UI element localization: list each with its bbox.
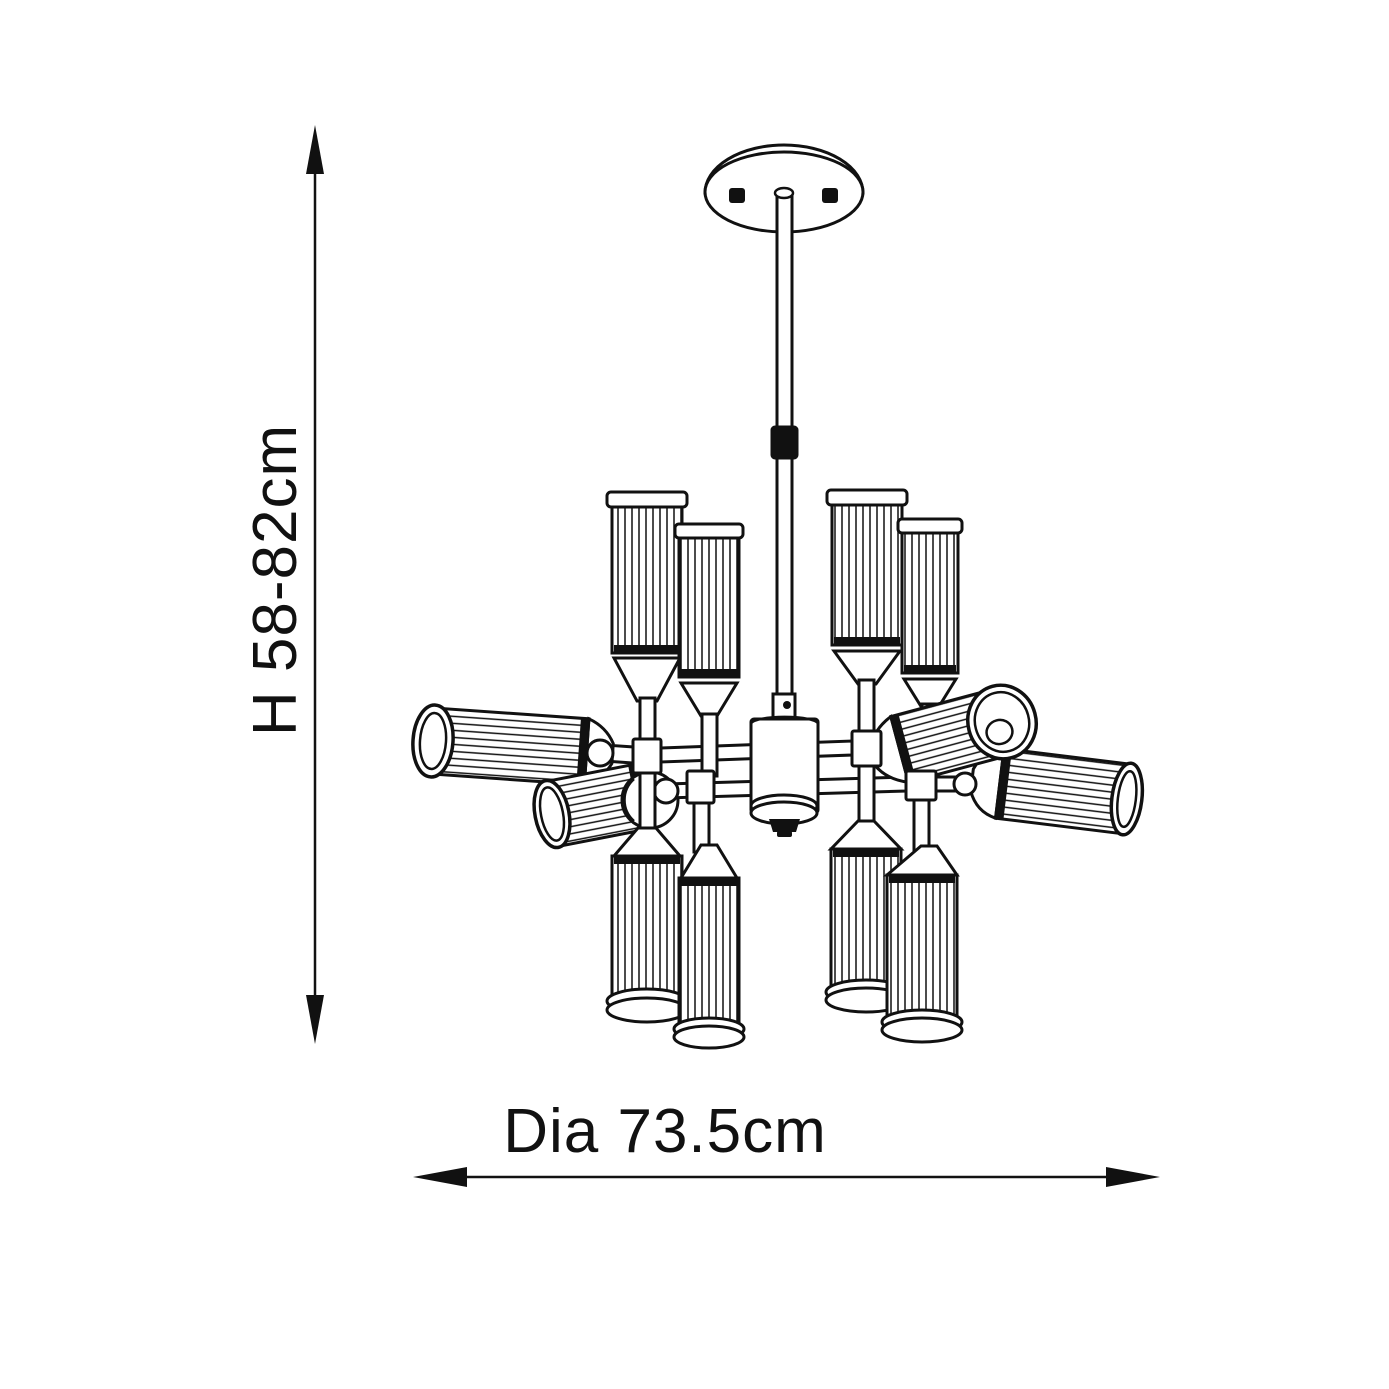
hub-finial xyxy=(769,819,800,832)
rod-adjuster xyxy=(772,427,797,458)
shade-down-right-outer xyxy=(882,846,962,1042)
chandelier-dimension-diagram: H 58-82cm Dia 73.5cm xyxy=(0,0,1389,1389)
shade-up-left-inner xyxy=(675,524,743,716)
arm-ball-lower-right xyxy=(954,773,976,795)
shade-up-right-outer xyxy=(898,519,962,708)
height-label: H 58-82cm xyxy=(241,424,310,736)
shade-down-left-outer xyxy=(607,828,687,1022)
central-hub xyxy=(751,717,818,837)
shade-up-left-outer xyxy=(607,492,687,701)
arm-ball-left xyxy=(587,740,613,766)
diameter-label: Dia 73.5cm xyxy=(503,1097,827,1166)
dimension-diagram-page: H 58-82cm Dia 73.5cm xyxy=(0,0,1389,1389)
shade-down-left-inner xyxy=(674,845,744,1048)
arm-ball-lower-left xyxy=(654,779,678,803)
suspension-rod xyxy=(772,188,797,722)
canopy-screw-left xyxy=(729,188,745,203)
canopy-screw-right xyxy=(822,188,838,203)
shade-up-right-inner xyxy=(827,490,907,684)
